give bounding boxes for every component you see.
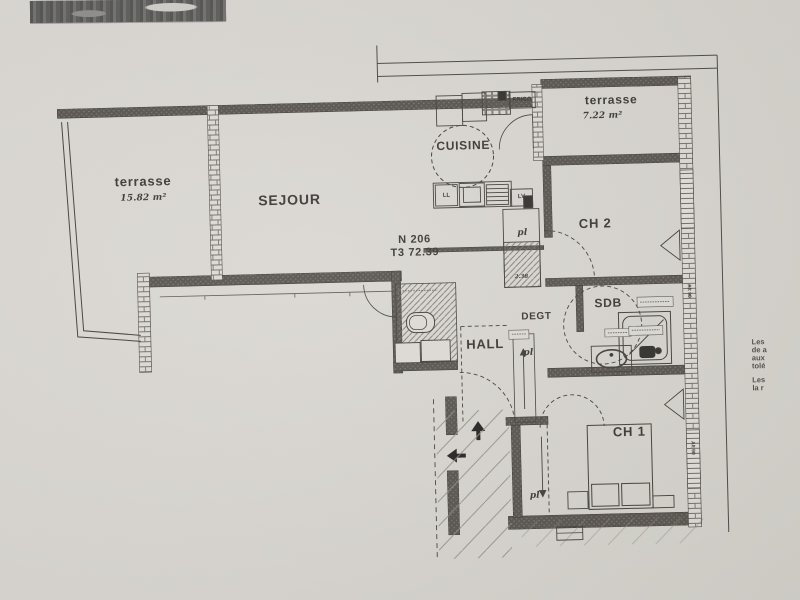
window-casement-icons (660, 230, 684, 419)
kitchen-label: CUISINE (436, 138, 490, 153)
washbasin-cabinet-icon (421, 340, 451, 362)
washbasin-cabinet-icon (395, 343, 420, 364)
stairwell-hatch (433, 393, 704, 561)
dishwasher-label: LV (518, 194, 525, 200)
window-dim-label: Alt 90 (686, 284, 692, 298)
terrace-left-area: 15.82 m² (120, 193, 166, 204)
floorplan-drawing: terrasse 15.82 m² SEJOUR CUISINE FRIGO L… (0, 0, 800, 600)
terrace-railing (62, 120, 141, 343)
terrace-top-label: terrasse (585, 92, 638, 107)
side-note-fragment: Les de a aux tolé Les la r (752, 338, 800, 393)
nightstand-icon (568, 491, 588, 508)
bedroom2-label: CH 2 (579, 215, 612, 231)
nightstand-icon (653, 495, 674, 508)
closet-label-bedroom1: pl (530, 491, 540, 501)
kitchen-door-arc (499, 115, 534, 150)
corridor-label: DEGT (521, 311, 551, 323)
hall-closet (509, 330, 536, 423)
structural-walls (57, 76, 702, 544)
window-dim-label: Alt 90 (690, 441, 696, 455)
fridge-label: FRIGO (513, 97, 532, 103)
hall-label: HALL (466, 336, 504, 352)
bathroom-label: SDB (594, 296, 622, 311)
closet-label-hall: pl (523, 348, 533, 358)
towel-radiator-icon (639, 346, 655, 358)
unit-type-area: T3 72.39 (390, 246, 439, 259)
terrace-top-area: 7.22 m² (583, 111, 623, 122)
floorplan-geometry (0, 0, 800, 600)
kitchen-table-icon (431, 125, 494, 188)
closet-label-corridor: pl (517, 228, 527, 238)
washer-label: LL (443, 193, 450, 199)
side-note-line: la r (752, 384, 800, 393)
wc-room (394, 283, 458, 363)
living-room-label: SEJOUR (258, 191, 321, 209)
bedroom1-label: CH 1 (613, 424, 646, 440)
ledge-line (160, 291, 400, 301)
terrace-left-label: terrasse (114, 173, 171, 189)
unit-number: N 206 (398, 233, 431, 246)
closet-dimension: 2.38 (515, 274, 529, 280)
floorplan-photo-page: { "plan": { "unit": { "number": "N 206",… (0, 0, 800, 600)
